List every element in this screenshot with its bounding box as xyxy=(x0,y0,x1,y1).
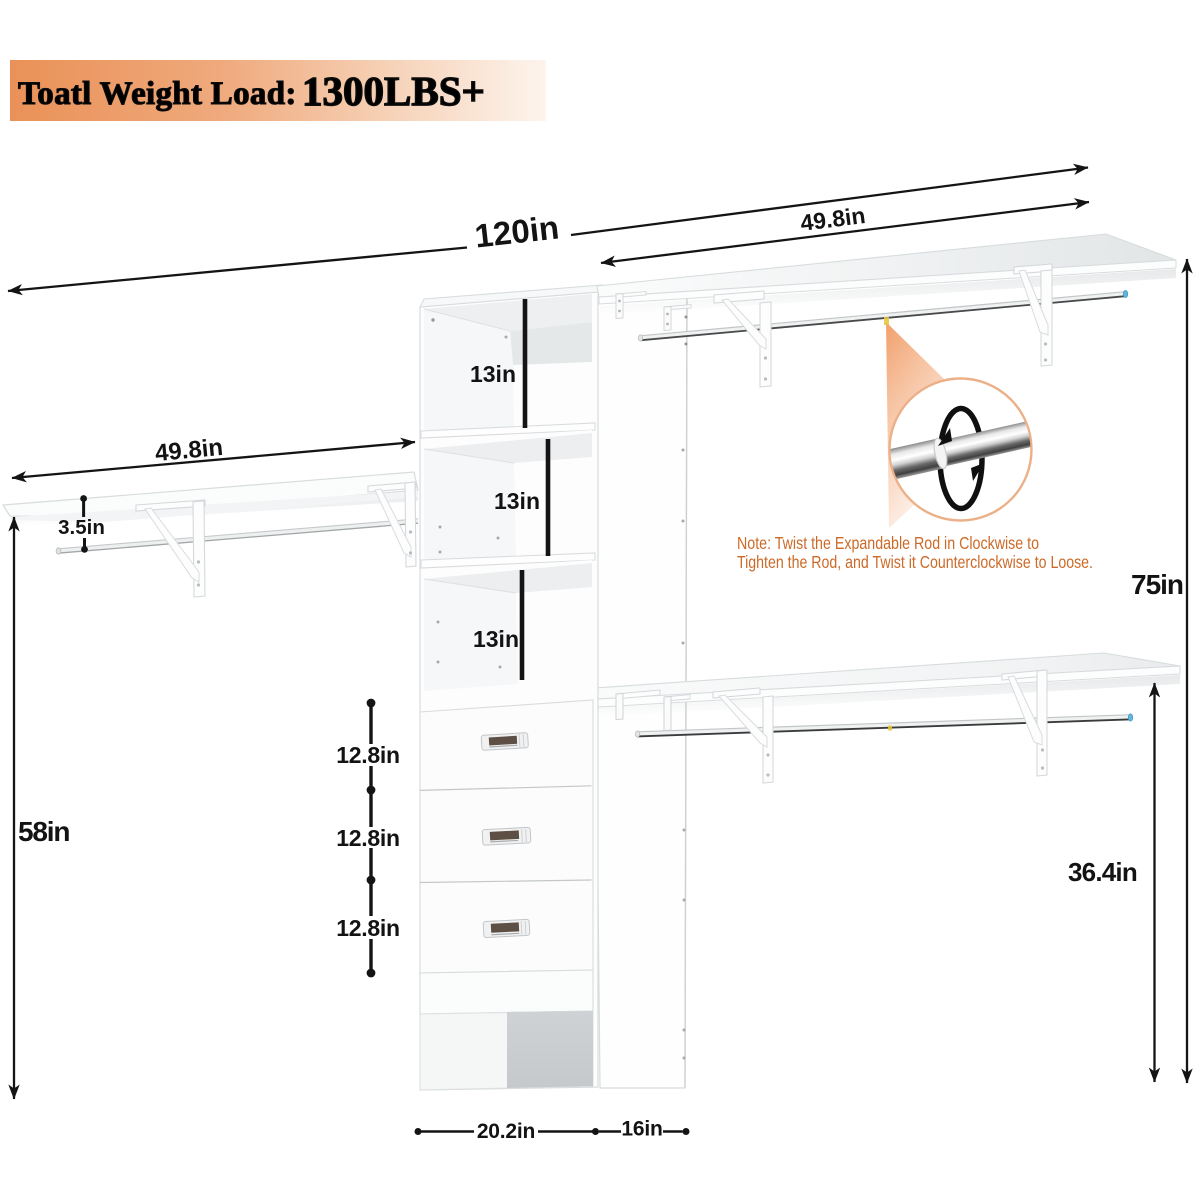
svg-text:12.8in: 12.8in xyxy=(336,915,399,941)
svg-text:Note: Twist the Expandable Rod: Note: Twist the Expandable Rod in Clockw… xyxy=(737,533,1039,553)
svg-text:13in: 13in xyxy=(473,626,519,652)
svg-text:13in: 13in xyxy=(494,488,540,514)
svg-text:Tighten the Rod, and Twist it: Tighten the Rod, and Twist it Counterclo… xyxy=(737,552,1093,572)
svg-text:12.8in: 12.8in xyxy=(336,742,399,768)
svg-text:Toatl Weight Load:: Toatl Weight Load: xyxy=(18,76,297,112)
svg-text:58in: 58in xyxy=(18,816,69,847)
svg-text:75in: 75in xyxy=(1131,569,1183,600)
svg-text:12.8in: 12.8in xyxy=(336,825,399,851)
svg-text:16in: 16in xyxy=(621,1118,662,1141)
svg-text:20.2in: 20.2in xyxy=(477,1120,535,1143)
svg-text:3.5in: 3.5in xyxy=(58,516,105,539)
svg-text:1300LBS+: 1300LBS+ xyxy=(302,68,485,114)
svg-text:36.4in: 36.4in xyxy=(1068,857,1137,887)
svg-text:13in: 13in xyxy=(470,361,516,387)
